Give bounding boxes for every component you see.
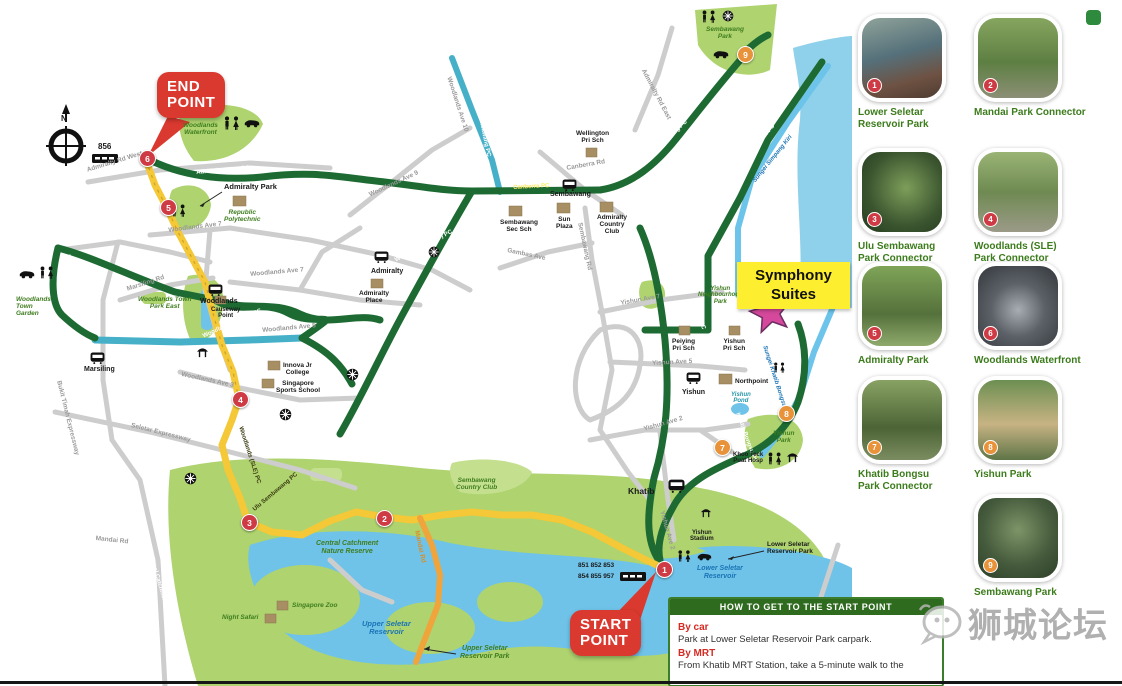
park-photo: 4 <box>974 148 1062 236</box>
map-page: Woodlands Waterfront Admiralty West PC A… <box>0 0 1122 686</box>
map-label: Innova Jr College <box>283 362 312 376</box>
route-number-badge: 6 <box>983 326 998 341</box>
sidebar-card: 3 Ulu Sembawang Park Connector <box>858 148 946 265</box>
sidebar-card: 9 Sembawang Park <box>974 494 1062 599</box>
route-number-badge: 3 <box>867 212 882 227</box>
map-label: Northpoint <box>735 378 768 385</box>
watermark-text: 狮城论坛 <box>968 598 1108 647</box>
map-label: Republic Polytechnic <box>224 209 260 223</box>
map-label: 856 <box>98 143 111 152</box>
route-number-badge: 7 <box>867 440 882 455</box>
route-marker-6: 6 <box>139 150 156 167</box>
map-label: Woodlands <box>200 298 238 306</box>
shelter-icon <box>197 348 208 357</box>
map-label: Admiralty Country Club <box>597 214 627 235</box>
route-number-badge: 4 <box>983 212 998 227</box>
map-label: Upper Seletar Reservoir <box>362 620 411 636</box>
map-label: Sembawang Country Club <box>456 477 497 491</box>
map-label: Yishun <box>682 389 705 397</box>
sidebar-card: 8 Yishun Park <box>974 376 1062 481</box>
park-photo: 9 <box>974 494 1062 582</box>
park-photo: 1 <box>858 14 946 102</box>
fitness-icon <box>723 11 734 22</box>
route-number-badge: 8 <box>983 440 998 455</box>
sidebar-card: 2 Mandai Park Connector <box>974 14 1062 119</box>
route-marker-2: 2 <box>376 510 393 527</box>
park-photo: 8 <box>974 376 1062 464</box>
route-marker-9: 9 <box>737 46 754 63</box>
bus-stop-icon <box>620 572 646 581</box>
map-label: Woodlands Town Garden <box>16 296 51 317</box>
park-caption: Yishun Park <box>974 469 1086 481</box>
route-number-badge: 5 <box>867 326 882 341</box>
map-label: Yishun Pond <box>731 392 751 405</box>
route-marker-3: 3 <box>241 514 258 531</box>
map-label: Woodlands Waterfront <box>183 122 218 136</box>
map-label: Upper Seletar Reservoir Park <box>460 645 509 660</box>
route-marker-8: 8 <box>778 405 795 422</box>
park-photo: 5 <box>858 262 946 350</box>
park-caption: Mandai Park Connector <box>974 107 1086 119</box>
start-point-callout: START POINT <box>570 610 641 656</box>
map-label: Admiralty Place <box>359 290 389 304</box>
by-car-text: Park at Lower Seletar Reservoir Park car… <box>678 634 934 645</box>
directions-info-box: HOW TO GET TO THE START POINT By car Par… <box>668 597 944 686</box>
map-label: Sembawang <box>550 191 591 199</box>
park-caption: Admiralty Park <box>858 355 970 367</box>
map-label: Lower Seletar Reservoir <box>697 565 743 580</box>
park-caption: Woodlands Waterfront <box>974 355 1086 367</box>
info-box-title: HOW TO GET TO THE START POINT <box>670 599 942 615</box>
map-label: Sembawang Sec Sch <box>500 219 538 233</box>
sidebar-card: 6 Woodlands Waterfront <box>974 262 1062 367</box>
fitness-icon <box>429 247 440 258</box>
fitness-icon <box>185 473 197 485</box>
map-label: Peiying Pri Sch <box>672 338 695 352</box>
map-label: Yishun Pri Sch <box>723 338 745 352</box>
map-label: Admiralty <box>371 268 403 276</box>
mrt-station-icon <box>687 372 701 384</box>
corner-icon <box>1086 10 1101 25</box>
route-number-badge: 2 <box>983 78 998 93</box>
map-label: Night Safari <box>222 614 258 621</box>
symphony-suites-callout: Symphony Suites <box>737 262 850 309</box>
route-marker-5: 5 <box>160 199 177 216</box>
park-photo: 2 <box>974 14 1062 102</box>
forum-watermark: 狮城论坛 <box>912 598 1108 647</box>
map-label: Khoo Teck Puat Hosp <box>733 452 763 465</box>
sidebar-card: 5 Admiralty Park <box>858 262 946 367</box>
map-label: Wellington Pri Sch <box>576 130 609 144</box>
by-car-heading: By car <box>678 622 934 633</box>
map-label: Sembawang Park <box>706 26 744 40</box>
map-label: Lower Seletar Reservoir Park <box>767 541 813 555</box>
park-photo: 6 <box>974 262 1062 350</box>
route-number-badge: 1 <box>867 78 882 93</box>
map-label: Marsiling <box>84 366 115 374</box>
park-caption: Khatib Bongsu Park Connector <box>858 469 970 493</box>
sidebar-card: 4 Woodlands (SLE) Park Connector <box>974 148 1062 265</box>
map-label: Admiralty Park <box>224 183 277 191</box>
chat-bubbles-icon <box>912 600 964 646</box>
park-photo: 7 <box>858 376 946 464</box>
by-mrt-text: From Khatib MRT Station, take a 5-minute… <box>678 660 934 671</box>
map-label: Central Catchment Nature Reserve <box>316 540 378 555</box>
end-point-callout: END POINT <box>157 72 225 118</box>
sidebar-card: 1 Lower Seletar Reservoir Park <box>858 14 946 131</box>
map-label: Singapore Zoo <box>292 602 338 609</box>
route-marker-7: 7 <box>714 439 731 456</box>
route-marker-4: 4 <box>232 391 249 408</box>
map-label: Yishun Park <box>773 430 794 444</box>
mrt-station-icon <box>375 251 389 263</box>
map-label: Sun Plaza <box>556 216 573 230</box>
image-bottom-border <box>0 681 1122 684</box>
fitness-icon <box>347 369 359 381</box>
toilet-icon <box>41 267 54 279</box>
map-label: Khatib <box>628 487 654 496</box>
route-number-badge: 9 <box>983 558 998 573</box>
carpark-icon <box>20 271 34 278</box>
route-marker-1: 1 <box>656 561 673 578</box>
compass-north-label: N <box>61 115 67 124</box>
map-label: Yishun Stadium <box>690 530 714 543</box>
map-label: Yishun Neighbourhood Park <box>698 286 743 305</box>
park-photo: 3 <box>858 148 946 236</box>
fitness-icon <box>280 409 292 421</box>
by-mrt-heading: By MRT <box>678 648 934 659</box>
sidebar-card: 7 Khatib Bongsu Park Connector <box>858 376 946 493</box>
park-caption: Lower Seletar Reservoir Park <box>858 107 970 131</box>
map-label: 851 852 853 <box>578 562 614 569</box>
map-label: Singapore Sports School <box>276 380 320 394</box>
map-label: 854 855 957 <box>578 573 614 580</box>
